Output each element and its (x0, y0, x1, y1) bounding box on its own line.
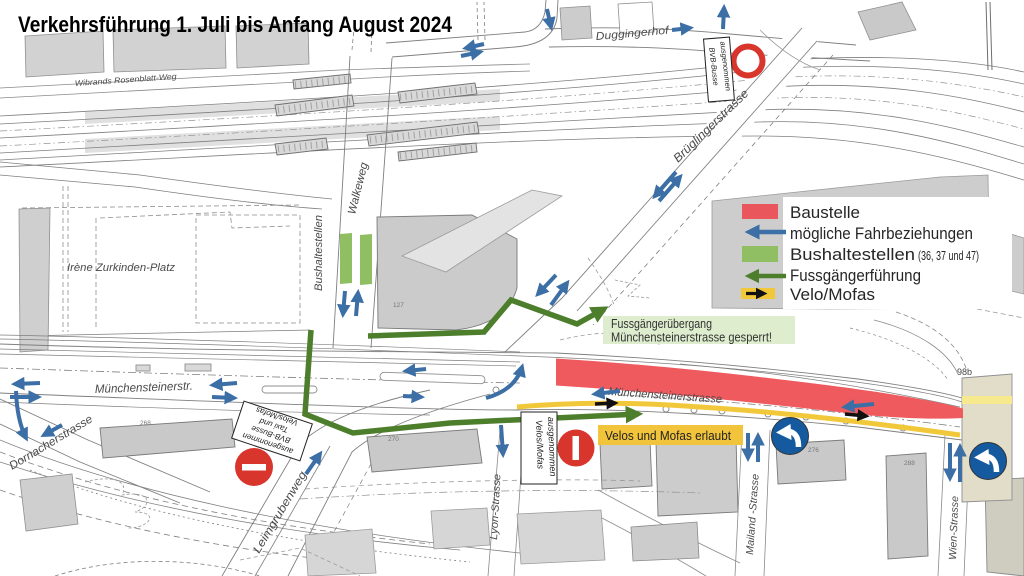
svg-text:ausgenommen: ausgenommen (546, 417, 558, 477)
svg-text:288: 288 (904, 460, 915, 467)
svg-text:Bushaltestellen (36, 37 und 47: Bushaltestellen (36, 37 und 47) (790, 246, 979, 264)
svg-text:270: 270 (388, 436, 399, 443)
svg-text:Wien-Strasse: Wien-Strasse (947, 496, 961, 561)
svg-text:mögliche Fahrbeziehungen: mögliche Fahrbeziehungen (790, 225, 973, 243)
svg-text:276: 276 (808, 447, 819, 454)
svg-text:Fussgängerübergang: Fussgängerübergang (611, 317, 712, 331)
svg-text:Velo/Mofas: Velo/Mofas (790, 286, 875, 304)
svg-text:98b: 98b (957, 367, 972, 377)
svg-text:268: 268 (140, 420, 151, 427)
svg-text:Münchensteinerstrasse gesperrt: Münchensteinerstrasse gesperrt! (611, 331, 772, 345)
svg-text:Velos/Mofas: Velos/Mofas (534, 420, 546, 470)
svg-text:127: 127 (393, 302, 404, 309)
svg-text:Irène Zurkinden-Platz: Irène Zurkinden-Platz (67, 262, 176, 274)
svg-text:Fussgängerführung: Fussgängerführung (790, 267, 921, 285)
svg-text:Verkehrsführung 1. Juli bis An: Verkehrsführung 1. Juli bis Anfang Augus… (18, 12, 453, 37)
svg-text:Baustelle: Baustelle (790, 204, 860, 222)
svg-text:Velos und Mofas erlaubt: Velos und Mofas erlaubt (605, 429, 731, 443)
svg-text:Bushaltestellen: Bushaltestellen (313, 215, 325, 291)
